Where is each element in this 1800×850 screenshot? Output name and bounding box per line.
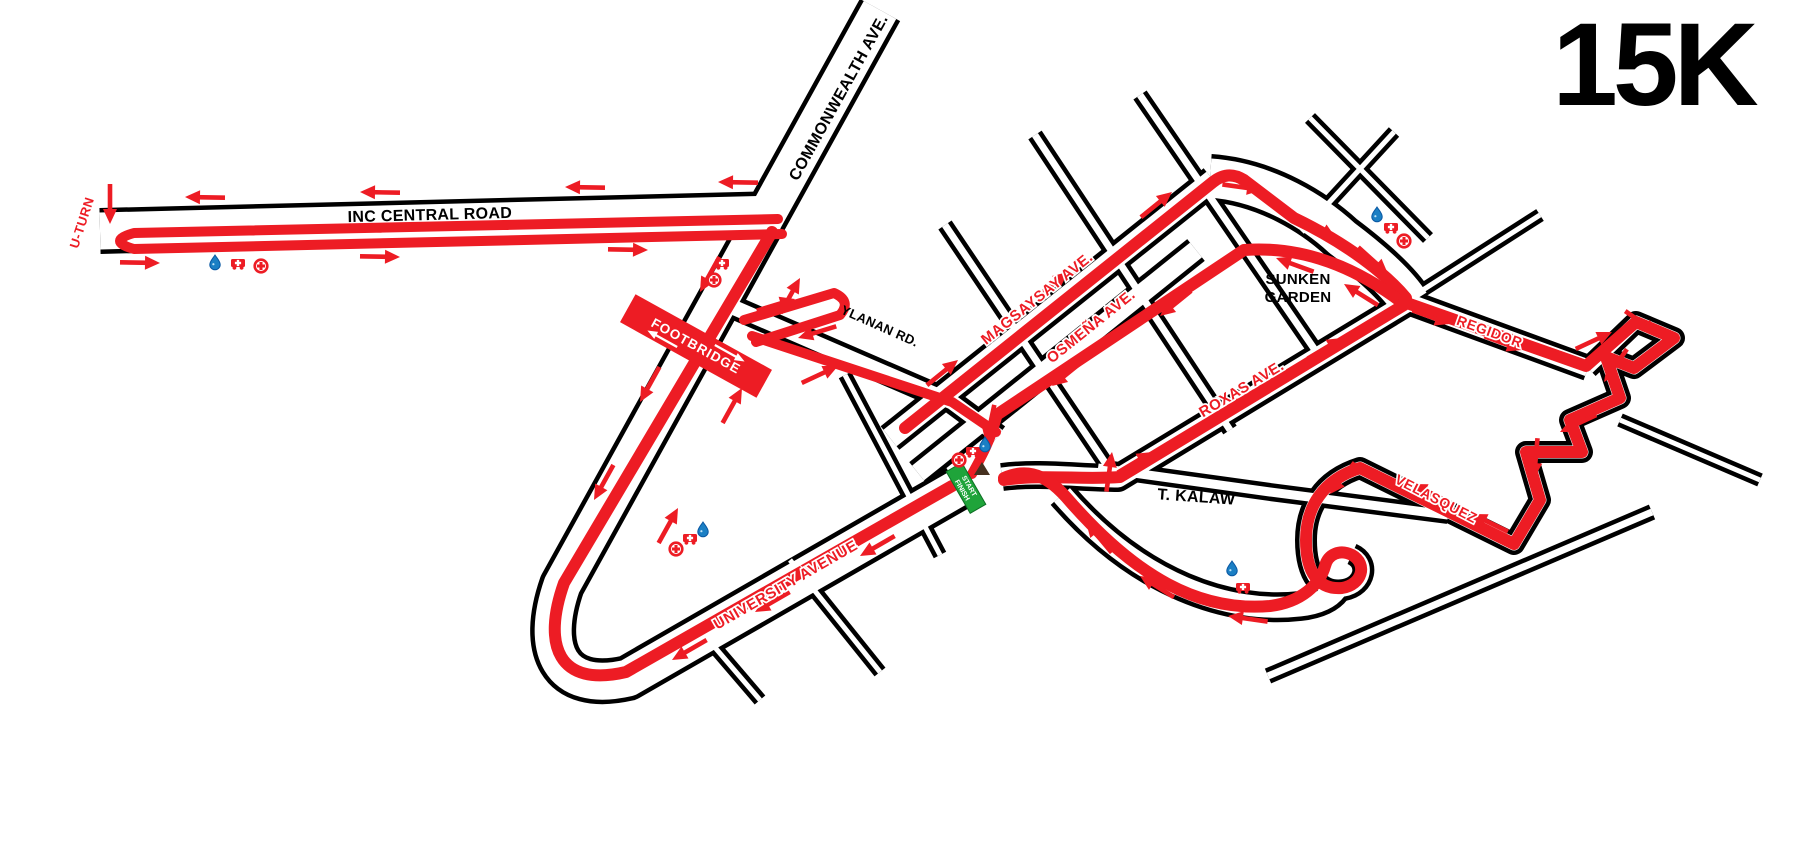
- label-u-turn: U-TURN: [66, 195, 97, 250]
- route-arrow: [120, 255, 160, 270]
- race-route-map: FOOTBRIDGESTARTFINISHU-TURNINC CENTRAL R…: [0, 0, 1800, 850]
- water-station-icon: [1372, 207, 1382, 222]
- ambulance-station-icon: [1384, 223, 1398, 234]
- water-station-icon: [210, 255, 220, 270]
- label-ylanan-rd: YLANAN RD.: [839, 302, 921, 350]
- route-arrow: [718, 175, 758, 190]
- route-arrow: [360, 185, 400, 200]
- route-arrow: [565, 180, 605, 195]
- medical-station-icon: [1398, 235, 1411, 248]
- route-map-canvas: FOOTBRIDGESTARTFINISHU-TURNINC CENTRAL R…: [0, 0, 1800, 850]
- label-sunken-garden-2: GARDEN: [1265, 289, 1332, 306]
- route-arrow: [360, 249, 400, 264]
- streets-casing: [100, 10, 1760, 700]
- route-arrow: [716, 385, 748, 427]
- medical-station-icon: [670, 543, 683, 556]
- streets-fill: [100, 10, 1760, 700]
- route-arrow: [185, 190, 225, 205]
- route-arrow: [608, 242, 648, 257]
- label-sunken-garden-1: SUNKEN: [1265, 271, 1330, 288]
- medical-station-icon: [255, 260, 268, 273]
- medical-station-icon: [953, 454, 966, 467]
- ambulance-station-icon: [966, 447, 980, 458]
- distance-title: 15K: [1518, 6, 1788, 124]
- medical-station-icon: [708, 274, 721, 287]
- water-station-icon: [698, 522, 708, 537]
- ambulance-station-icon: [231, 259, 245, 270]
- route-arrow: [652, 505, 684, 547]
- ambulance-station-icon: [683, 534, 697, 545]
- water-station-icon: [1227, 561, 1237, 576]
